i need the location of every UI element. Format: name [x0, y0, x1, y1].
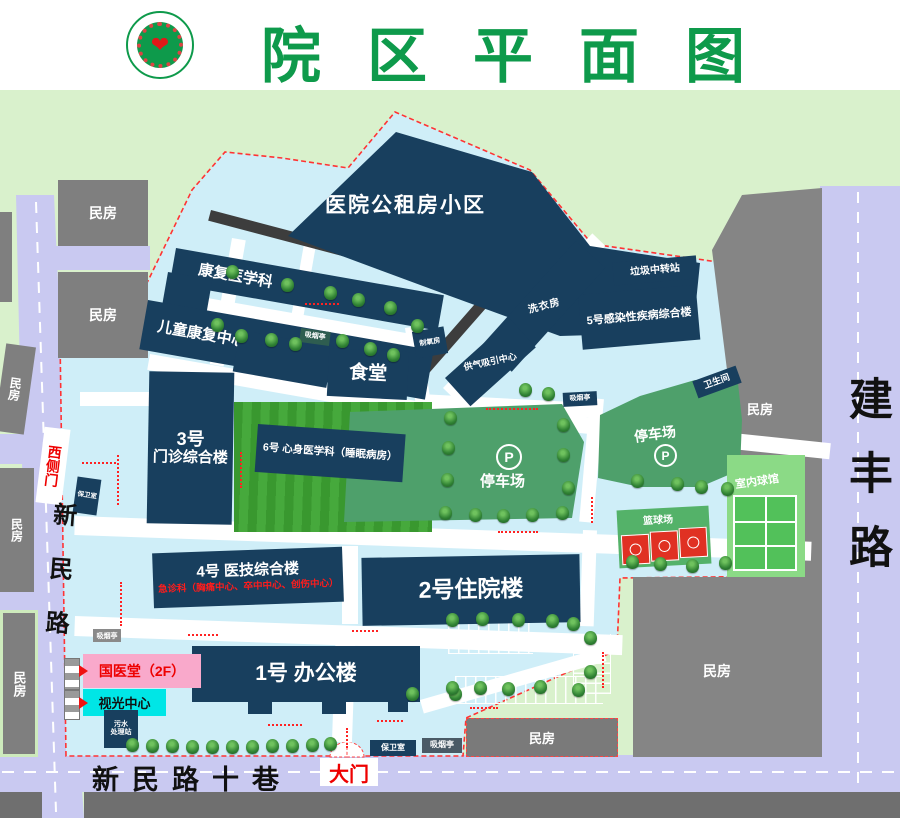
- route-dotted-line: [188, 634, 218, 636]
- tree-icon: [286, 739, 299, 753]
- building-label: 吸烟亭: [97, 631, 118, 641]
- main-gate-label: 大门: [329, 758, 369, 787]
- west-gate-label: 西侧门: [41, 444, 66, 488]
- residential-label: 民房: [9, 518, 26, 542]
- tree-icon: [306, 738, 319, 752]
- tree-icon: [336, 334, 349, 348]
- tree-icon: [626, 555, 639, 569]
- gate-barrier: [64, 658, 80, 690]
- residential-label: 民房: [89, 203, 117, 223]
- building-no1-office: 1号 办公楼: [192, 646, 420, 702]
- smoking-pavilion: 吸烟亭: [563, 391, 598, 407]
- residential-block: 民房: [0, 468, 34, 592]
- tree-icon: [497, 509, 510, 523]
- indoor-gym: 室内球馆: [727, 455, 805, 577]
- tree-icon: [211, 318, 224, 332]
- tree-icon: [474, 681, 487, 695]
- tree-icon: [186, 740, 199, 754]
- building-label: 国医堂（2F）: [99, 661, 185, 681]
- parking-label: 停车场: [633, 421, 677, 447]
- building-label: 保卫室: [77, 491, 97, 501]
- tree-icon: [265, 333, 278, 347]
- building-tcm-hall: 国医堂（2F）: [83, 654, 201, 688]
- gate-barrier: [64, 690, 80, 720]
- tree-icon: [441, 473, 454, 487]
- building-notch: [248, 700, 272, 714]
- tree-icon: [324, 737, 337, 751]
- tennis-court: [733, 495, 797, 571]
- parking-symbol: P: [654, 444, 677, 467]
- tree-icon: [534, 680, 547, 694]
- route-dotted-line: [268, 724, 302, 726]
- tree-icon: [444, 411, 457, 425]
- building-label: 5号感染性疾病综合楼: [586, 307, 692, 328]
- residential-block: 民房: [58, 180, 148, 246]
- residential-label: 民房: [529, 728, 555, 747]
- route-dotted-line: [240, 452, 242, 488]
- residential-label: 民房: [747, 399, 773, 418]
- tree-icon: [562, 481, 575, 495]
- building-notch: [322, 700, 346, 714]
- route-dotted-line: [470, 707, 498, 709]
- tree-icon: [584, 665, 597, 679]
- tree-icon: [146, 739, 159, 753]
- building-no4-medtech: 4号 医技综合楼 急诊科（胸痛中心、卒中中心、创伤中心）: [152, 547, 344, 609]
- building-label: 污水: [114, 721, 128, 729]
- tree-icon: [519, 383, 532, 397]
- building-label: 吸烟亭: [430, 741, 454, 750]
- tree-icon: [126, 738, 139, 752]
- building-label: 制氧房: [419, 337, 441, 348]
- building-label: 门诊综合楼: [153, 449, 228, 467]
- residential-block: 民房: [466, 718, 618, 757]
- guard-room-south: 保卫室: [370, 740, 416, 756]
- tree-icon: [695, 480, 708, 494]
- residential-label: 民房: [89, 305, 117, 325]
- route-dotted-line: [120, 582, 122, 626]
- route-dotted-line: [117, 455, 119, 505]
- building-label: 洗衣房: [526, 297, 561, 316]
- tree-icon: [721, 482, 734, 496]
- residential-label: 民房: [10, 671, 29, 697]
- residential-strip: [84, 792, 900, 818]
- logo-heart-icon: ❤: [151, 34, 169, 56]
- route-dotted-line: [377, 720, 403, 722]
- tree-icon: [352, 293, 365, 307]
- tree-icon: [567, 617, 580, 631]
- route-dotted-line: [82, 462, 116, 464]
- residential-strip: [0, 792, 42, 818]
- building-label: 4号 医技综合楼: [196, 561, 299, 581]
- campus-map: ❤ 院区平面图 民房 民房 民房 民房 民房 民房 民房 民房 P: [0, 0, 900, 818]
- tree-icon: [654, 557, 667, 571]
- route-dotted-line: [498, 531, 538, 533]
- tree-icon: [387, 348, 400, 362]
- tree-icon: [406, 687, 419, 701]
- route-dotted-line: [486, 408, 538, 410]
- residential-block: 民房: [0, 610, 38, 757]
- tree-icon: [442, 441, 455, 455]
- tree-icon: [206, 740, 219, 754]
- tree-icon: [246, 740, 259, 754]
- tree-icon: [572, 683, 585, 697]
- tree-icon: [226, 265, 239, 279]
- residential-block: 民房: [58, 272, 148, 358]
- logo-inner-disc: ❤: [137, 22, 183, 68]
- building-label: 6号 心身医学科（睡眠病房）: [263, 443, 398, 464]
- tree-icon: [542, 387, 555, 401]
- route-dotted-line: [591, 497, 593, 523]
- building-label: 吸烟亭: [569, 395, 590, 404]
- building-no5-infectious: 5号感染性疾病综合楼: [578, 285, 700, 350]
- tree-icon: [512, 613, 525, 627]
- building-label: 食堂: [348, 363, 387, 386]
- tree-icon: [411, 319, 424, 333]
- tree-icon: [631, 474, 644, 488]
- tree-icon: [446, 681, 459, 695]
- building-label: 1号 办公楼: [255, 662, 357, 685]
- campus-path: [80, 392, 154, 406]
- tree-icon: [502, 682, 515, 696]
- building-label: 3号: [176, 430, 204, 450]
- building-label: 处理站: [111, 729, 132, 737]
- tree-icon: [166, 739, 179, 753]
- tree-icon: [266, 739, 279, 753]
- indoor-gym-label: 室内球馆: [734, 470, 780, 492]
- tree-icon: [584, 631, 597, 645]
- building-label: 保卫室: [381, 744, 405, 753]
- residential-label: 民房: [703, 661, 731, 681]
- tree-icon: [526, 508, 539, 522]
- tree-icon: [469, 508, 482, 522]
- smoking-pavilion: 吸烟亭: [422, 738, 462, 753]
- route-dotted-line: [602, 652, 604, 688]
- building-label: 垃圾中转站: [630, 263, 681, 278]
- tree-icon: [364, 342, 377, 356]
- building-no3-outpatient: 3号 门诊综合楼: [147, 371, 235, 524]
- guard-room-west: 保卫室: [73, 477, 102, 516]
- tree-icon: [324, 286, 337, 300]
- smoking-pavilion: 吸烟亭: [93, 629, 121, 642]
- building-emergency-label: 急诊科（胸痛中心、卒中中心、创伤中心）: [158, 579, 339, 596]
- route-dotted-line: [352, 630, 378, 632]
- tree-icon: [289, 337, 302, 351]
- tree-icon: [384, 301, 397, 315]
- building-label: 吸烟亭: [304, 332, 326, 343]
- entrance-arrow-icon: [79, 665, 88, 677]
- tree-icon: [226, 740, 239, 754]
- building-notch: [388, 700, 408, 712]
- hospital-logo: ❤: [126, 11, 194, 79]
- tree-icon: [556, 506, 569, 520]
- entrance-arrow-icon: [79, 697, 88, 709]
- tree-icon: [446, 613, 459, 627]
- building-label: 供气吸引中心: [463, 352, 518, 373]
- residential-label: 民房: [5, 376, 25, 402]
- main-gate-sign: 大门: [320, 758, 378, 786]
- basketball-label: 篮球场: [643, 511, 674, 528]
- tree-icon: [671, 477, 684, 491]
- tree-icon: [235, 329, 248, 343]
- building-label: 2号住院楼: [418, 576, 523, 603]
- parking-symbol: P: [496, 444, 522, 470]
- route-dotted-line: [305, 303, 339, 305]
- campus-path: [342, 546, 358, 624]
- parking-label: 停车场: [480, 470, 525, 491]
- tree-icon: [476, 612, 489, 626]
- residential-block: [0, 212, 12, 302]
- tree-icon: [281, 278, 294, 292]
- tree-icon: [546, 614, 559, 628]
- tree-icon: [557, 418, 570, 432]
- tree-icon: [719, 556, 732, 570]
- tree-icon: [686, 559, 699, 573]
- building-no6-psychosomatic: 6号 心身医学科（睡眠病房）: [255, 424, 406, 482]
- tree-icon: [557, 448, 570, 462]
- route-dotted-line: [346, 728, 348, 748]
- building-label: 儿童康复中心: [142, 316, 247, 350]
- tree-icon: [439, 506, 452, 520]
